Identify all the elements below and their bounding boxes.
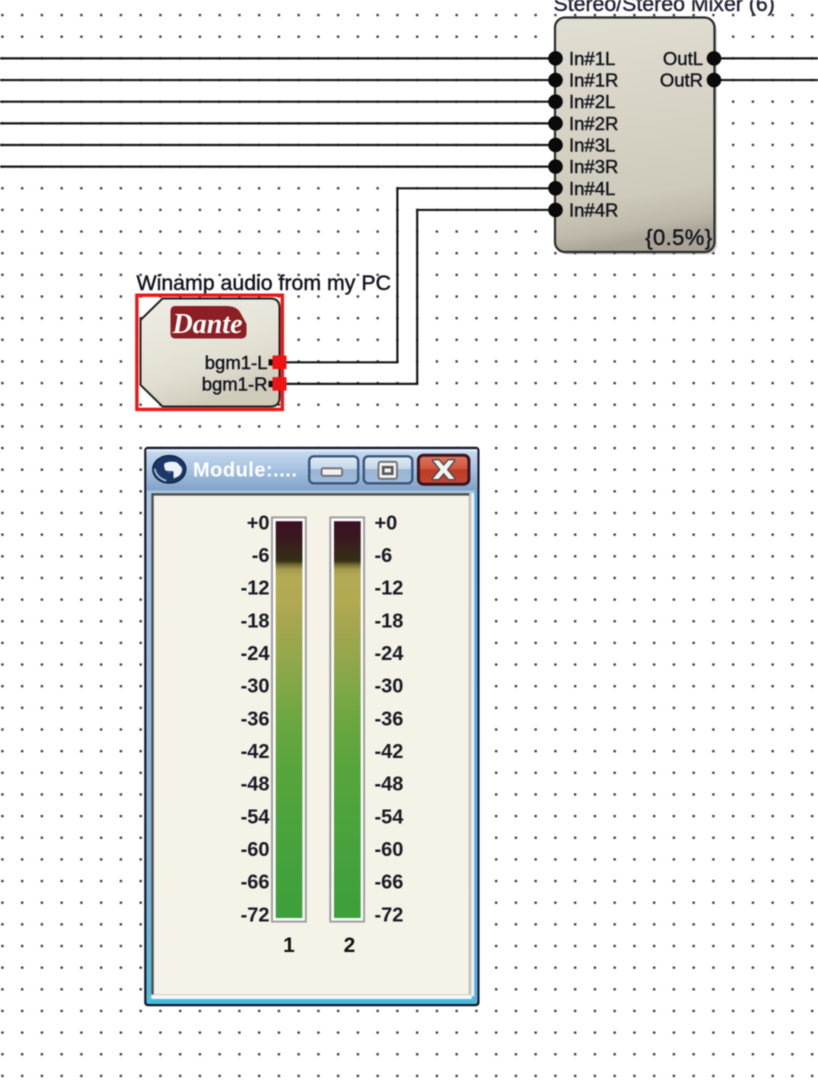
svg-text:-48: -48	[241, 774, 270, 796]
svg-text:OutR: OutR	[660, 70, 703, 91]
svg-text:Dante: Dante	[172, 309, 243, 340]
svg-text:Module:....: Module:....	[193, 460, 297, 482]
svg-text:In#3R: In#3R	[569, 156, 618, 177]
svg-text:In#1R: In#1R	[569, 70, 618, 91]
svg-text:-36: -36	[375, 708, 404, 730]
svg-text:1: 1	[283, 934, 295, 957]
svg-text:-42: -42	[375, 741, 404, 763]
svg-text:+0: +0	[375, 512, 398, 534]
svg-text:-66: -66	[241, 872, 270, 894]
svg-text:bgm1-L: bgm1-L	[205, 352, 268, 373]
svg-text:-24: -24	[375, 643, 405, 665]
svg-text:2: 2	[344, 934, 356, 957]
svg-text:In#3L: In#3L	[569, 135, 615, 156]
svg-text:+0: +0	[247, 512, 270, 534]
svg-text:-72: -72	[241, 904, 270, 926]
svg-text:{0.5%}: {0.5%}	[645, 225, 712, 250]
svg-text:Winamp audio from my PC: Winamp audio from my PC	[137, 271, 391, 295]
svg-text:-54: -54	[375, 806, 405, 828]
svg-text:-54: -54	[241, 806, 271, 828]
svg-text:-60: -60	[375, 839, 404, 861]
svg-text:-12: -12	[241, 578, 270, 600]
svg-text:-12: -12	[375, 578, 404, 600]
svg-text:-18: -18	[375, 610, 404, 632]
svg-text:-30: -30	[241, 676, 270, 698]
svg-text:-18: -18	[241, 610, 270, 632]
svg-text:In#4L: In#4L	[569, 178, 615, 199]
svg-text:Stereo/Stereo Mixer (6): Stereo/Stereo Mixer (6)	[554, 0, 775, 16]
svg-text:-72: -72	[375, 904, 404, 926]
svg-text:In#2L: In#2L	[569, 91, 615, 112]
svg-text:-66: -66	[375, 872, 404, 894]
svg-text:-36: -36	[241, 708, 270, 730]
svg-text:OutL: OutL	[663, 48, 703, 69]
svg-text:-30: -30	[375, 676, 404, 698]
svg-text:bgm1-R: bgm1-R	[202, 373, 268, 394]
svg-text:-24: -24	[241, 643, 271, 665]
svg-text:In#4R: In#4R	[569, 199, 618, 220]
svg-text:In#2R: In#2R	[569, 113, 618, 134]
svg-text:-6: -6	[375, 545, 393, 567]
svg-text:-60: -60	[241, 839, 270, 861]
svg-text:In#1L: In#1L	[569, 48, 615, 69]
svg-text:-42: -42	[241, 741, 270, 763]
svg-text:-6: -6	[252, 545, 270, 567]
svg-text:-48: -48	[375, 774, 404, 796]
